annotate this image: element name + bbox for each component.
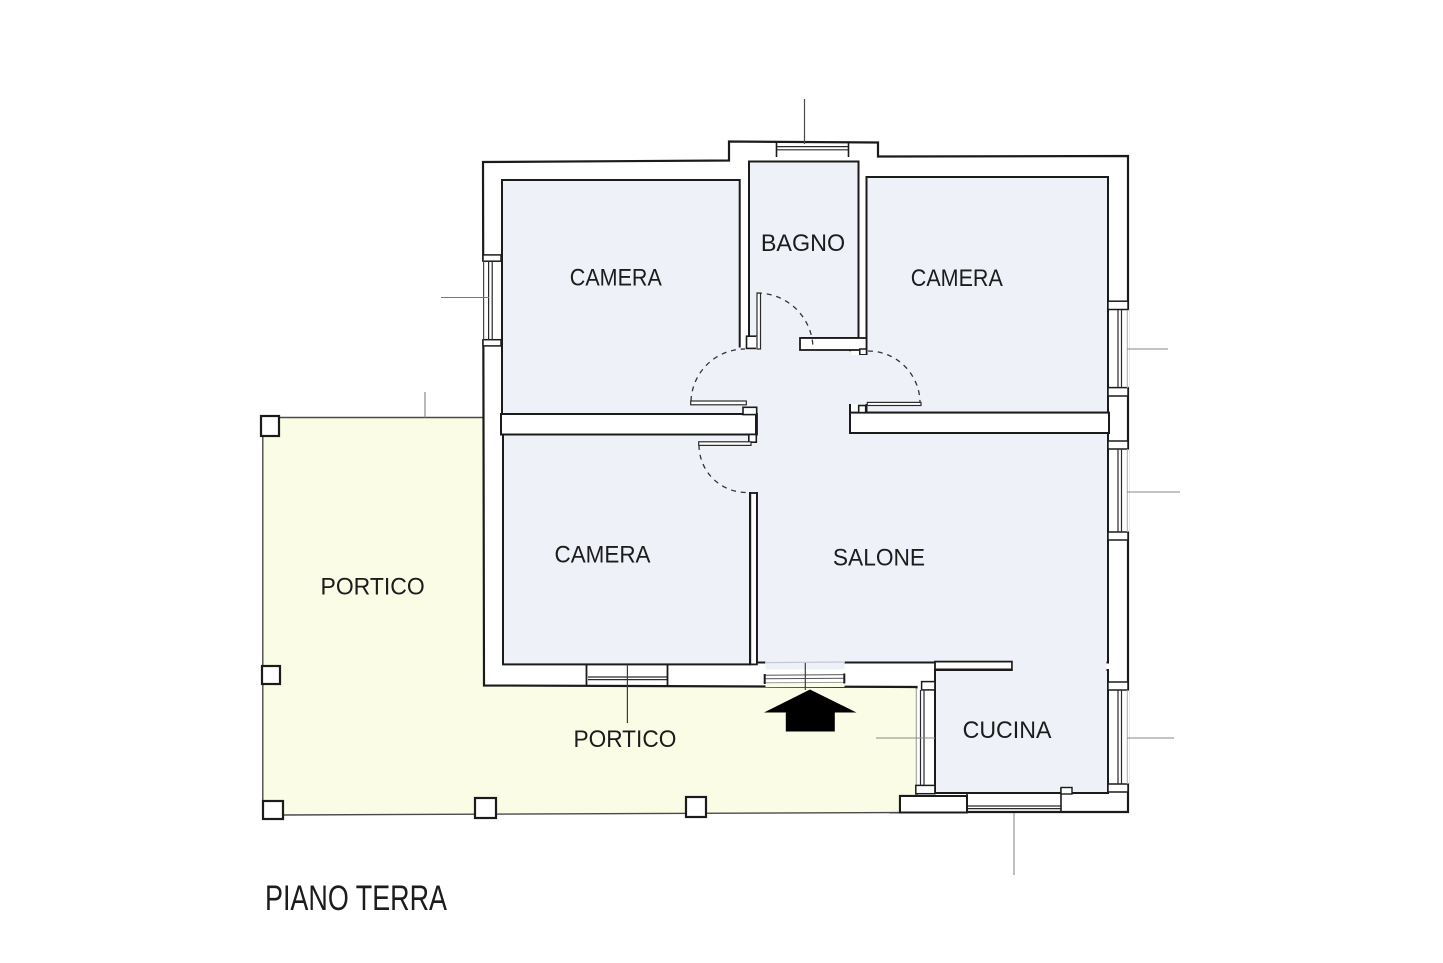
svg-text:PORTICO: PORTICO <box>573 726 676 753</box>
svg-text:CUCINA: CUCINA <box>963 717 1052 744</box>
svg-text:PIANO TERRA: PIANO TERRA <box>265 878 447 918</box>
svg-text:CAMERA: CAMERA <box>570 264 663 291</box>
svg-text:CAMERA: CAMERA <box>911 265 1004 292</box>
svg-text:SALONE: SALONE <box>833 544 925 571</box>
svg-text:PORTICO: PORTICO <box>321 573 425 600</box>
svg-text:CAMERA: CAMERA <box>555 542 652 569</box>
svg-text:BAGNO: BAGNO <box>761 230 845 257</box>
